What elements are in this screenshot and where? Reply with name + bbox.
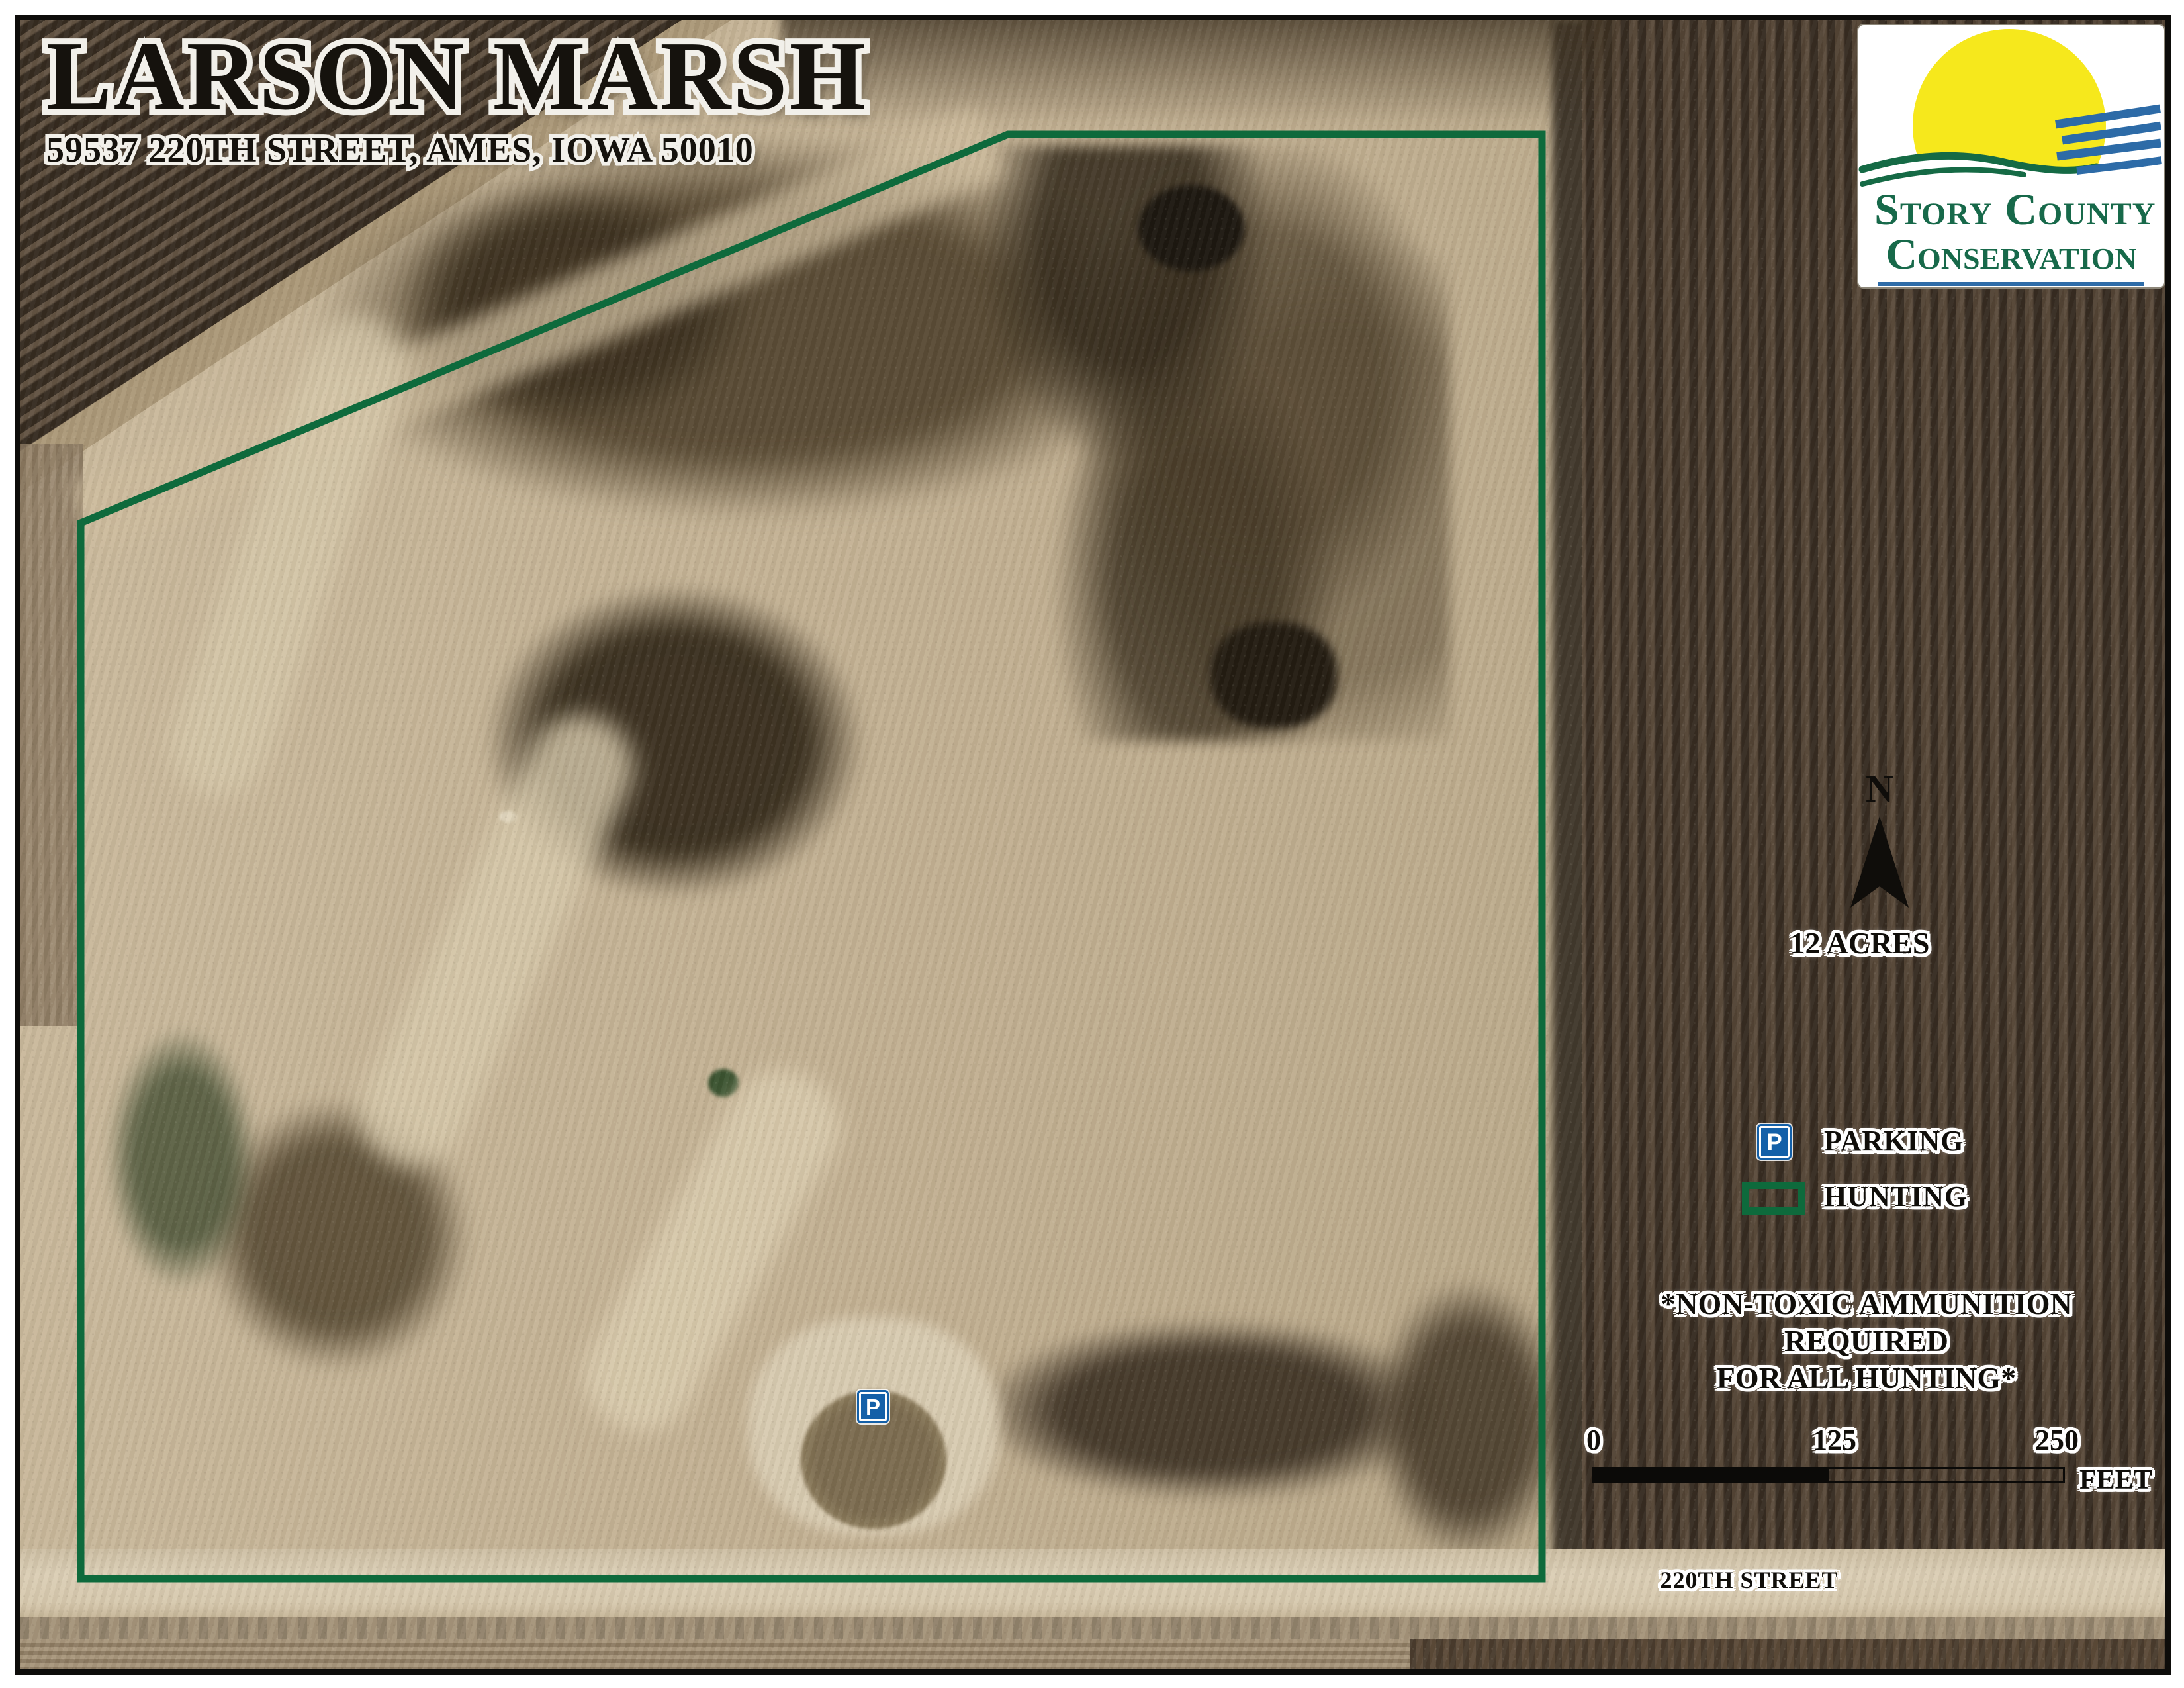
parking-sign-icon: P xyxy=(1757,1124,1792,1160)
page-title: LARSON MARSH xyxy=(46,25,868,128)
north-label: N xyxy=(1820,767,1939,811)
logo-rule-bottom xyxy=(1878,282,2144,286)
scale-unit-label: FEET xyxy=(2079,1464,2152,1496)
story-county-conservation-logo: Story County Conservation xyxy=(1857,24,2165,289)
north-indicator: N xyxy=(1820,767,1939,909)
scale-label-125: 125 xyxy=(1813,1423,1856,1457)
street-label: 220TH STREET xyxy=(1650,1566,1848,1594)
scale-bar-filled-half xyxy=(1594,1469,1829,1481)
logo-line1: Story County xyxy=(1874,187,2156,232)
logo-text: Story County Conservation xyxy=(1858,187,2164,286)
hunting-label: HUNTING xyxy=(1824,1180,1968,1213)
map-poster-page: P LARSON MARSH 59537 220TH STREET, AMES,… xyxy=(0,0,2184,1688)
logo-sun-waves-icon xyxy=(1858,25,2164,187)
title-block: LARSON MARSH 59537 220TH STREET, AMES, I… xyxy=(46,25,868,170)
hunting-boundary-swatch xyxy=(1742,1182,1805,1215)
parking-sign-glyph: P xyxy=(1766,1131,1782,1154)
scale-bar-graphic xyxy=(1592,1467,2065,1483)
ammunition-notice-line2: FOR ALL HUNTING* xyxy=(1575,1360,2158,1397)
parking-marker-glyph: P xyxy=(866,1396,880,1418)
logo-line2: Conservation xyxy=(1858,233,2164,277)
park-address: 59537 220TH STREET, AMES, IOWA 50010 xyxy=(46,129,868,170)
map-frame: P LARSON MARSH 59537 220TH STREET, AMES,… xyxy=(15,15,2171,1675)
north-arrow-icon xyxy=(1849,815,1910,909)
acreage-label: 12 ACRES xyxy=(1741,925,1979,961)
legend: P PARKING HUNTING xyxy=(1741,1123,2071,1180)
scale-bar: 0 125 250 FEET xyxy=(1592,1423,2171,1516)
scale-label-0: 0 xyxy=(1586,1423,1601,1457)
legend-parking-row: P PARKING HUNTING xyxy=(1741,1123,2071,1180)
scale-label-250: 250 xyxy=(2035,1423,2079,1457)
parking-marker: P xyxy=(857,1390,889,1423)
ammunition-notice: *NON-TOXIC AMMUNITION REQUIRED FOR ALL H… xyxy=(1575,1286,2158,1397)
parking-label: PARKING xyxy=(1824,1124,1964,1158)
ammunition-notice-line1: *NON-TOXIC AMMUNITION REQUIRED xyxy=(1575,1286,2158,1360)
